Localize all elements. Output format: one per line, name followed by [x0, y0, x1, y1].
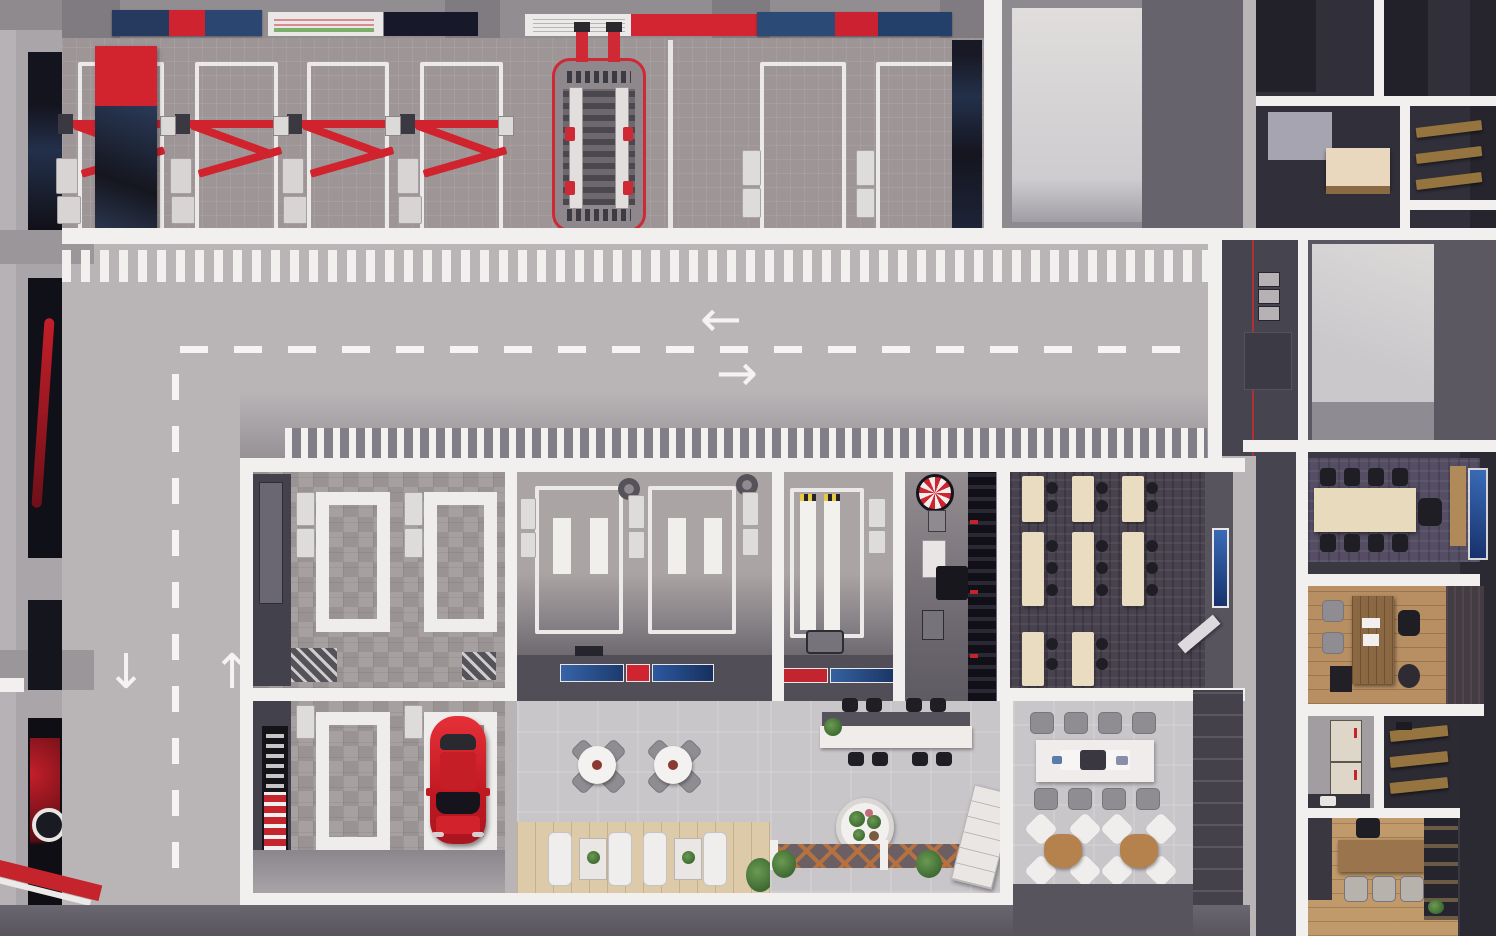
wall-box — [575, 646, 603, 656]
tool-cabinet — [282, 158, 304, 194]
training-table — [1072, 476, 1094, 522]
planter-plant — [867, 815, 881, 829]
banner-chart-dark — [268, 12, 478, 36]
storage-wall-shade — [1384, 0, 1428, 96]
delivery-room — [1002, 0, 1243, 228]
lift-vent-top — [567, 71, 631, 83]
floor-drain-grate — [462, 652, 496, 680]
lounge-round-table — [654, 746, 692, 784]
alignment-tower-head — [606, 22, 622, 32]
banner-blue-red-left — [112, 10, 262, 36]
car-mirror — [484, 788, 490, 796]
mobile-machine — [806, 630, 844, 654]
wall-equipment — [520, 498, 536, 530]
wall — [240, 458, 1245, 472]
wall — [1308, 808, 1460, 818]
runway-strip — [824, 494, 840, 630]
electrical-panel-wall — [1222, 240, 1298, 456]
counter-chair — [848, 752, 864, 766]
storage-wall-shade — [1470, 0, 1496, 228]
wall-poster-red — [626, 664, 650, 682]
floorplan-render: ← → ↓ ↑ — [0, 0, 1496, 936]
wall-equipment — [742, 150, 761, 186]
banner-chart-green-row — [274, 28, 374, 32]
tire-rack-label — [970, 654, 978, 658]
parts-shelf — [1390, 751, 1449, 768]
right-wing-corridor — [1256, 452, 1296, 936]
wall-washer — [404, 528, 423, 558]
lift-post-white — [160, 116, 176, 136]
planter-flower — [865, 809, 873, 817]
banner-spec-red — [525, 14, 760, 36]
prep-bay-2 — [648, 486, 736, 634]
locker — [1330, 720, 1362, 762]
meeting-chair — [1320, 468, 1336, 486]
storage-suite — [1256, 0, 1496, 228]
wall — [893, 458, 905, 701]
office-bin — [1398, 664, 1420, 688]
wall-equipment — [856, 188, 875, 218]
wall — [240, 893, 1010, 905]
training-table — [1072, 632, 1094, 686]
car-rear-window — [440, 734, 476, 750]
staff-plant — [1428, 900, 1444, 914]
wall-poster-red — [780, 668, 828, 683]
office-cabinet — [1330, 666, 1352, 692]
tool-display-red — [264, 792, 286, 850]
staff-chair — [1356, 818, 1380, 838]
training-table — [1022, 532, 1044, 606]
training-table — [1022, 476, 1044, 522]
cafe-chair — [1136, 788, 1160, 810]
cafe-chair — [1098, 712, 1122, 734]
alignment-scissor-lift — [552, 58, 646, 232]
reception-counter — [820, 726, 972, 748]
storage-wall-shade — [1256, 0, 1316, 92]
lift-clamp — [565, 127, 575, 141]
wall — [62, 228, 1243, 244]
lift-clamp — [623, 181, 633, 195]
table-centerpiece — [592, 760, 602, 770]
sign-red-panel — [95, 46, 157, 106]
car-headlight — [472, 832, 484, 837]
delivery-room-wall-shadow — [1142, 0, 1243, 228]
wall-poster-dark — [28, 600, 62, 690]
prep-pad — [668, 518, 686, 574]
wall-equipment — [628, 531, 645, 559]
cafe-chair — [1068, 788, 1092, 810]
training-chair — [1146, 540, 1158, 552]
panel-box — [1258, 272, 1280, 287]
training-table — [1022, 632, 1044, 686]
tire-rack-label — [970, 590, 978, 594]
tool-cabinet — [398, 196, 422, 224]
red-sports-car — [430, 716, 486, 844]
training-chair — [1096, 482, 1108, 494]
fence-plant — [772, 850, 796, 878]
wall — [1308, 574, 1480, 586]
panel-box — [1258, 289, 1280, 304]
training-chair — [1146, 482, 1158, 494]
alignment-tower-head — [574, 22, 590, 32]
wall-equipment — [628, 495, 645, 529]
training-chair — [1046, 658, 1058, 670]
meeting-chair — [1344, 534, 1360, 552]
training-chair — [1146, 500, 1158, 512]
wall-equipment — [742, 188, 761, 218]
parts-shelf — [1390, 777, 1449, 794]
storage-bottom-wall — [1243, 228, 1496, 240]
cafe-chair — [1102, 788, 1126, 810]
desk-paper — [1363, 634, 1379, 646]
cup — [1052, 756, 1062, 764]
desk-paper — [1362, 618, 1380, 628]
wall-equipment — [868, 498, 886, 528]
entrance-canopy — [285, 428, 1207, 458]
planter-plant — [853, 829, 865, 841]
locker-mark — [1354, 770, 1357, 780]
wall-equipment — [856, 150, 875, 186]
set-wood-table — [1044, 834, 1082, 868]
training-chair — [1096, 658, 1108, 670]
training-chair — [1146, 584, 1158, 596]
training-table — [1122, 532, 1144, 606]
office-guest-chair — [1322, 600, 1344, 622]
training-chair — [1046, 482, 1058, 494]
prep-pad — [590, 518, 608, 574]
car-roof — [440, 752, 476, 790]
meeting-chair — [1344, 468, 1360, 486]
wall-poster-blue — [560, 664, 624, 682]
floor-drain-grate — [291, 648, 337, 682]
lift-post — [400, 114, 415, 134]
planter-plant — [849, 811, 865, 827]
meeting-chair — [1392, 468, 1408, 486]
recliner — [643, 832, 667, 886]
tool-cabinet — [57, 196, 81, 224]
reception-counter-top — [822, 712, 970, 726]
wall-equipment — [520, 532, 536, 558]
table-plant — [587, 851, 600, 864]
training-chair — [1046, 584, 1058, 596]
poster-red-streak — [31, 318, 54, 508]
staff-chair — [1372, 876, 1396, 902]
lift-post — [175, 114, 190, 134]
lift-post — [287, 114, 302, 134]
banner-blue-red-right — [757, 12, 952, 36]
fence-plant — [916, 850, 942, 878]
staff-counter — [1308, 818, 1332, 900]
trellis-post — [880, 840, 888, 870]
wash-platform — [316, 492, 390, 632]
lift-clamp — [565, 181, 575, 195]
spare-bay-1 — [760, 62, 846, 232]
tool-cabinet — [397, 158, 419, 194]
parts-box — [1396, 722, 1412, 730]
wall-equipment — [868, 530, 886, 554]
left-beam-cap — [0, 678, 24, 692]
empty-side-room — [1308, 240, 1496, 452]
wall-washer — [404, 492, 423, 526]
counter-plant — [824, 718, 842, 736]
wall-poster-blue — [652, 664, 714, 682]
spare-bay-2 — [876, 62, 958, 232]
runway-hazard-edge — [824, 494, 840, 501]
counter-chair — [872, 752, 888, 766]
tire-box — [922, 610, 944, 640]
poster-wheel-rim — [32, 808, 62, 842]
wall — [1296, 440, 1308, 936]
tire-rack — [968, 472, 996, 701]
cafe-long-table — [1036, 740, 1154, 782]
meeting-sideboard — [1450, 466, 1466, 546]
storage-floor-patch — [1268, 112, 1332, 160]
wall — [984, 0, 1002, 240]
meeting-chair — [1368, 534, 1384, 552]
training-table — [1072, 532, 1094, 606]
training-chair — [1146, 562, 1158, 574]
workshop-sign-board — [95, 46, 157, 232]
wheel-display — [916, 474, 954, 512]
cup — [1116, 756, 1128, 765]
prep-pad — [704, 518, 722, 574]
storage-wall — [1404, 200, 1496, 210]
wall-poster-red-car — [28, 278, 62, 558]
lift-post-white — [498, 116, 514, 136]
planter-rock — [869, 831, 879, 841]
counter-chair — [936, 752, 952, 766]
tool-cabinet — [171, 196, 195, 224]
training-wall-screen — [1212, 528, 1229, 608]
training-chair — [1096, 584, 1108, 596]
counter-chair — [906, 698, 922, 712]
table-centerpiece — [668, 760, 678, 770]
cafe-bottom-shadow — [1013, 884, 1193, 936]
side-room-floor — [1312, 244, 1434, 402]
runway-hazard-edge — [800, 494, 816, 501]
panel-cabinet — [1244, 332, 1292, 390]
sink-counter — [1308, 794, 1370, 808]
runway-strip — [800, 494, 816, 630]
tire-desk — [936, 566, 968, 600]
plant-side-table — [579, 838, 607, 880]
car-mirror — [426, 788, 432, 796]
wash-corridor-door — [259, 482, 283, 604]
cafe-chair — [1030, 712, 1054, 734]
recliner — [548, 832, 572, 886]
wheel-stand — [928, 510, 946, 532]
wash-platform — [424, 492, 497, 632]
conference-table — [1314, 488, 1416, 532]
recliner — [608, 832, 632, 886]
staff-table — [1338, 840, 1424, 872]
counter-chair — [930, 698, 946, 712]
meeting-chair — [1368, 468, 1384, 486]
office-guest-chair — [1322, 632, 1344, 654]
wall-washer — [296, 705, 315, 739]
wall — [772, 458, 784, 701]
parts-shelf-room — [1384, 716, 1460, 808]
lift-post — [58, 114, 73, 134]
wash-corridor-dark — [253, 474, 291, 686]
wash-lower-shadow — [253, 850, 505, 893]
storage-beige-shelf-edge — [1326, 186, 1390, 194]
tire-rack-label — [970, 520, 978, 524]
tool-cabinet — [283, 196, 307, 224]
wall — [240, 458, 253, 908]
meeting-chair — [1320, 534, 1336, 552]
training-chair — [1096, 562, 1108, 574]
lift-clamp — [623, 127, 633, 141]
staff-chair — [1400, 876, 1424, 902]
training-chair — [1096, 540, 1108, 552]
panel-box — [1258, 306, 1280, 321]
training-chair — [1096, 500, 1108, 512]
corridor-dashed-line — [172, 354, 179, 868]
lane-arrow-down: ↓ — [106, 648, 146, 696]
lane-arrow-left: ← — [700, 294, 742, 344]
wall — [1243, 440, 1496, 452]
prep-pad — [553, 518, 571, 574]
delivery-room-floor — [1012, 8, 1144, 222]
car-headlight — [432, 832, 444, 837]
left-wall-edge — [0, 0, 16, 936]
wall-poster-blue — [830, 668, 896, 683]
wall-washer — [296, 528, 315, 558]
wall — [1374, 716, 1384, 808]
lane-divider-dashed — [180, 346, 1206, 353]
lift-vent-bottom — [567, 209, 631, 221]
bookshelf-wall — [1193, 690, 1243, 936]
office-wardrobe — [1446, 586, 1484, 704]
wall — [1298, 236, 1308, 460]
storage-beige-shelf — [1326, 148, 1390, 188]
office-desk — [1352, 596, 1394, 684]
tool-cabinet — [56, 158, 78, 194]
tool-display-dots — [266, 732, 284, 788]
training-chair — [1096, 638, 1108, 650]
plant-side-table — [674, 838, 702, 880]
sink — [1320, 796, 1336, 806]
meeting-chair — [1392, 534, 1408, 552]
cafe-chair — [1064, 712, 1088, 734]
set-wood-table — [1120, 834, 1158, 868]
wall — [997, 458, 1010, 701]
poster-strip-dark — [952, 40, 982, 230]
wall-washer — [404, 705, 423, 739]
meeting-wall-screen — [1468, 468, 1488, 560]
lift-post-white — [385, 116, 401, 136]
break-room — [1308, 716, 1374, 808]
training-chair — [1046, 540, 1058, 552]
staff-chair — [1344, 876, 1368, 902]
recliner — [703, 832, 727, 886]
lounge-round-table — [578, 746, 616, 784]
wall — [1308, 704, 1484, 716]
sign-blue-panel — [95, 106, 157, 232]
coffee-machine — [1080, 750, 1106, 770]
wash-platform — [316, 712, 390, 850]
wall-equipment — [742, 492, 759, 526]
wall-poster-red-wheel — [28, 718, 62, 930]
wall — [505, 458, 517, 701]
training-table — [1122, 476, 1144, 522]
tool-cabinet — [170, 158, 192, 194]
counter-chair — [866, 698, 882, 712]
counter-chair — [842, 698, 858, 712]
training-chair — [1046, 562, 1058, 574]
wall-equipment — [742, 528, 759, 556]
locker-mark — [1354, 728, 1357, 738]
table-plant — [682, 851, 695, 864]
wall-washer — [296, 492, 315, 526]
training-chair — [1046, 500, 1058, 512]
lift-post-white — [273, 116, 289, 136]
wall — [1208, 240, 1222, 460]
cafe-chair — [1132, 712, 1156, 734]
car-windshield — [436, 792, 480, 814]
meeting-head-chair — [1418, 498, 1442, 526]
prep-bay-1 — [535, 486, 623, 634]
cafe-chair — [1034, 788, 1058, 810]
storage-wall — [1256, 96, 1496, 106]
tool-display-board — [262, 726, 288, 856]
training-chair — [1046, 638, 1058, 650]
floor-joint-line — [668, 40, 673, 230]
counter-chair — [912, 752, 928, 766]
storage-wall — [1374, 0, 1384, 96]
lane-arrow-right: → — [716, 348, 758, 398]
crosswalk — [62, 250, 1208, 282]
wall — [240, 688, 517, 701]
office-exec-chair — [1398, 610, 1420, 636]
